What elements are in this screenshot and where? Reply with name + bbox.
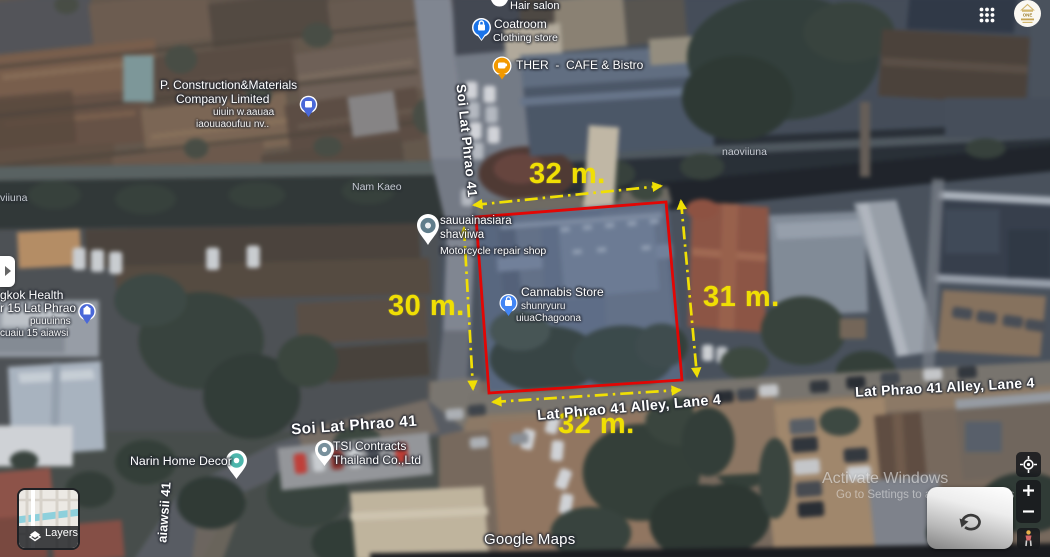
svg-text:ONE: ONE [1023, 13, 1033, 18]
